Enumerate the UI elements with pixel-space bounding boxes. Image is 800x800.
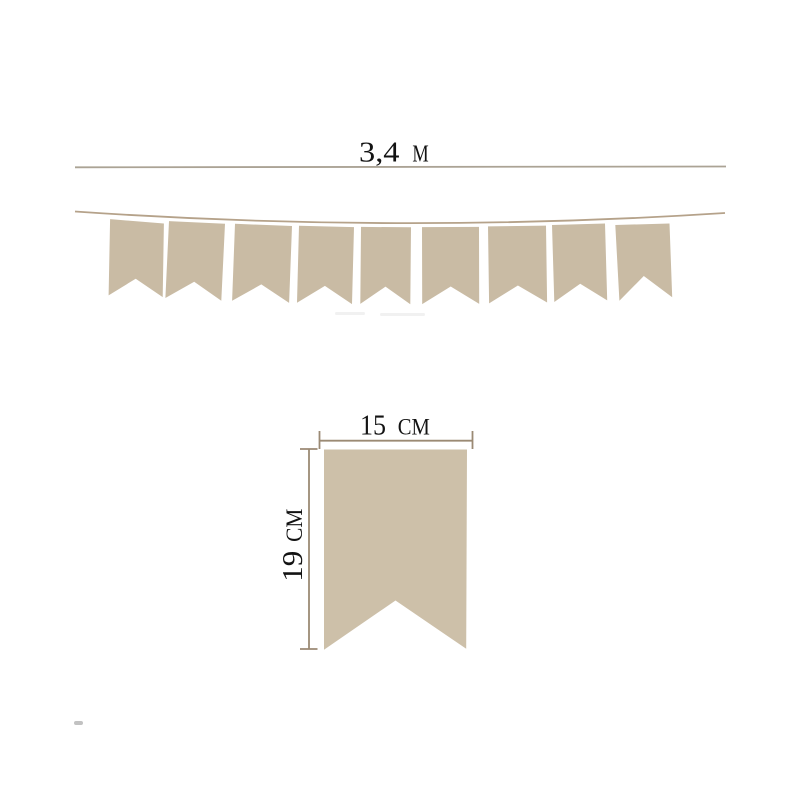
svg-text:М: М xyxy=(412,141,428,168)
svg-text:СМ: СМ xyxy=(282,509,307,542)
svg-text:19: 19 xyxy=(278,551,309,582)
svg-text:3,4: 3,4 xyxy=(359,137,400,169)
svg-text:15: 15 xyxy=(360,410,386,442)
svg-text:СМ: СМ xyxy=(398,415,430,440)
